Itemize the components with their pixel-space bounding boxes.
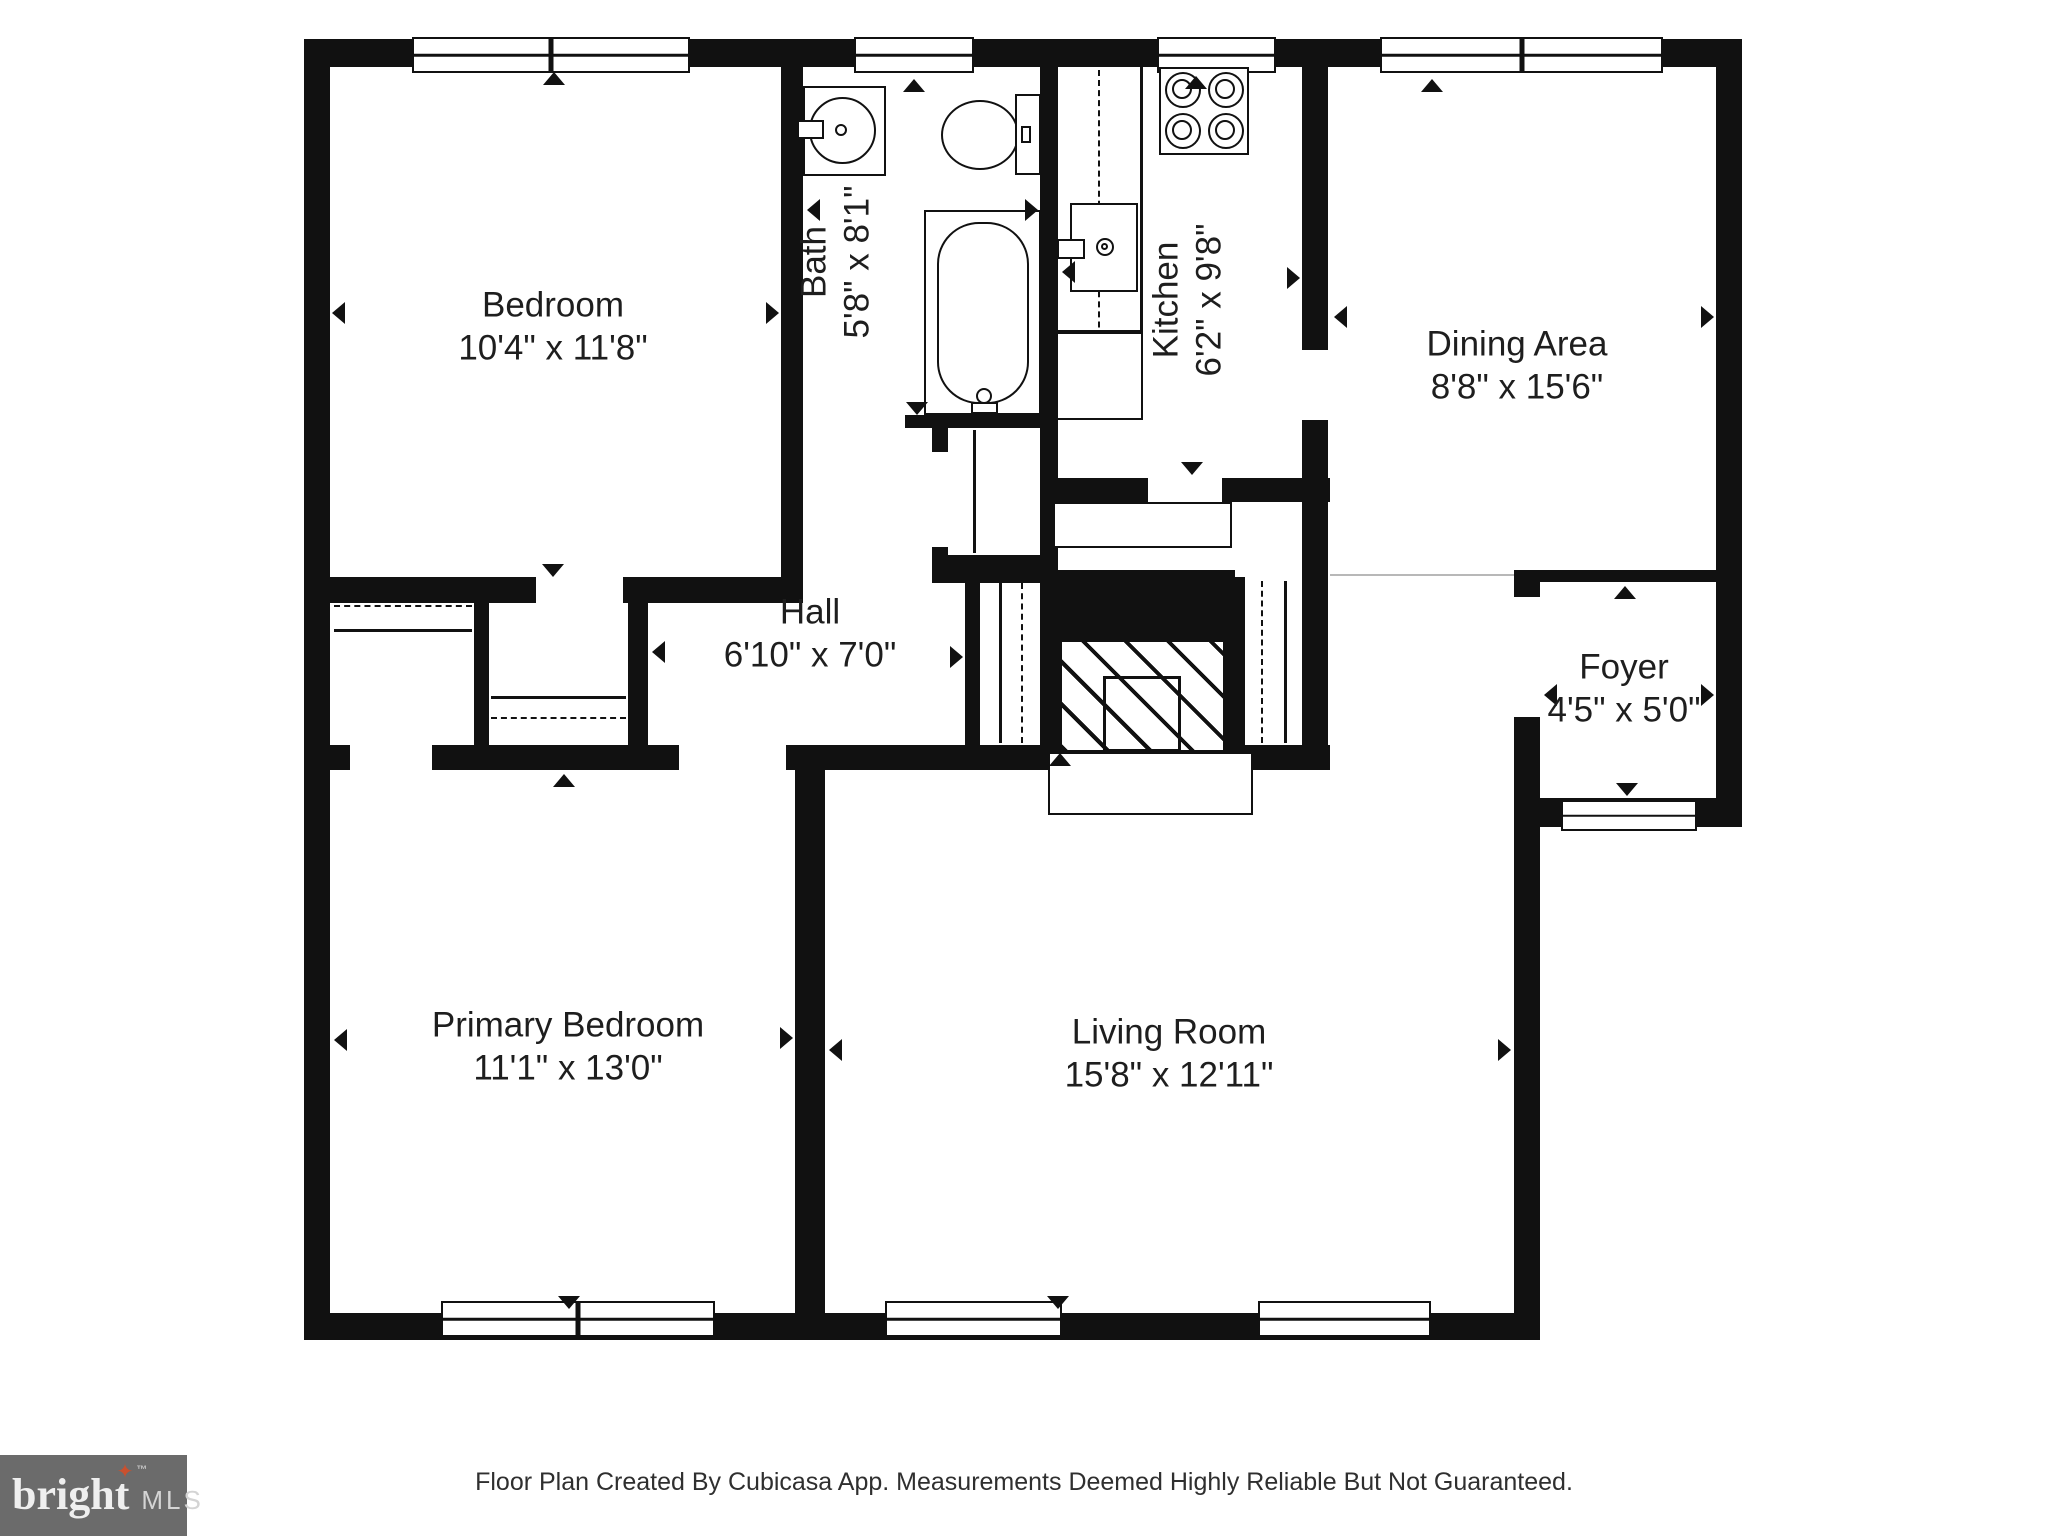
window-glass-line [1158, 54, 1275, 57]
wall [786, 745, 965, 770]
window-mullion [1519, 38, 1524, 72]
wall [474, 603, 489, 745]
room-label-kitchen: Kitchen 6'2" x 9'8" [1145, 223, 1232, 376]
wall [1040, 640, 1060, 755]
stove-burner-icon [1165, 113, 1201, 149]
dimension-arrow-icon [1049, 753, 1071, 766]
dimension-arrow-icon [829, 1039, 842, 1061]
closet-shelf-line [973, 430, 976, 553]
bathtub-faucet-base-icon [971, 402, 998, 414]
floor-plan: Bedroom 10'4" x 11'8" Bath 5'8" x 8'1" K… [0, 0, 2048, 1536]
closet-shelf-line [334, 629, 472, 632]
window-glass-line [855, 54, 973, 57]
room-dims: 10'4" x 11'8" [458, 327, 647, 370]
window-glass-line [1562, 814, 1696, 817]
dimension-arrow-icon [1181, 462, 1203, 475]
logo-star-icon: ✦ [117, 1461, 134, 1481]
dimension-arrow-icon [543, 72, 565, 85]
room-label-primary-bedroom: Primary Bedroom 11'1" x 13'0" [432, 1004, 704, 1091]
wall [795, 770, 825, 1313]
closet-shelf-line [1140, 67, 1143, 332]
bright-mls-logo: bright✦™ MLS [0, 1455, 187, 1536]
room-label-bedroom: Bedroom 10'4" x 11'8" [458, 284, 647, 371]
wall [932, 555, 1053, 583]
window-glass-line [1259, 1318, 1430, 1321]
room-dims: 6'2" x 9'8" [1188, 223, 1231, 376]
closet-rod-dashed-line [491, 717, 626, 719]
wall [628, 603, 648, 745]
fireplace-firebox-icon [1103, 676, 1181, 752]
room-name: Foyer [1547, 646, 1700, 689]
logo-suffix-text: MLS [141, 1485, 203, 1516]
dimension-arrow-icon [780, 1027, 793, 1049]
dimension-arrow-icon [1421, 79, 1443, 92]
closet-shelf-line [1284, 581, 1287, 743]
bath-sink-drain-icon [835, 124, 847, 136]
bath-sink-faucet-icon [797, 120, 824, 139]
wall [1222, 478, 1330, 502]
dimension-arrow-icon [553, 774, 575, 787]
wall [1302, 67, 1328, 350]
room-name: Dining Area [1427, 323, 1608, 366]
floor-transition-line [1330, 574, 1514, 576]
closet-shelf-line [999, 583, 1002, 743]
kitchen-sink-drain-icon [1096, 238, 1114, 256]
wall [1302, 570, 1328, 770]
wall [1528, 570, 1716, 582]
room-dims: 8'8" x 15'6" [1427, 366, 1608, 409]
kitchen-peninsula-counter [1053, 502, 1232, 548]
dimension-arrow-icon [1701, 306, 1714, 328]
stove-burner-icon [1208, 72, 1244, 108]
counter-dashed-line [1021, 583, 1023, 743]
dimension-arrow-icon [1498, 1039, 1511, 1061]
bathtub-basin-icon [937, 222, 1029, 404]
window [1561, 800, 1697, 831]
disclaimer-text: Floor Plan Created By Cubicasa App. Meas… [0, 1468, 2048, 1497]
fireplace-hearth [1048, 752, 1253, 815]
dimension-arrow-icon [1047, 1296, 1069, 1309]
room-name: Primary Bedroom [432, 1004, 704, 1047]
wall [965, 577, 980, 770]
trademark-symbol: ™ [136, 1465, 147, 1476]
room-dims: 5'8" x 8'1" [836, 185, 879, 338]
dimension-arrow-icon [906, 402, 928, 415]
wall [1235, 577, 1245, 745]
wall [330, 577, 536, 603]
stove-burner-icon [1208, 113, 1244, 149]
closet-rod-dashed-line [334, 605, 472, 607]
room-label-bath: Bath 5'8" x 8'1" [793, 185, 880, 338]
wall [932, 428, 948, 452]
window [885, 1301, 1062, 1337]
dimension-arrow-icon [334, 1029, 347, 1051]
wall [432, 745, 679, 770]
dimension-arrow-icon [1025, 199, 1038, 221]
room-name: Hall [724, 591, 897, 634]
dimension-arrow-icon [652, 641, 665, 663]
room-name: Kitchen [1145, 223, 1188, 376]
dimension-arrow-icon [332, 302, 345, 324]
dimension-arrow-icon [542, 564, 564, 577]
closet-shelf-line [491, 696, 626, 699]
kitchen-cabinet [1056, 332, 1143, 420]
window [1380, 37, 1663, 73]
room-dims: 11'1" x 13'0" [432, 1047, 704, 1090]
room-label-hall: Hall 6'10" x 7'0" [724, 591, 897, 678]
room-label-living-room: Living Room 15'8" x 12'11" [1065, 1011, 1274, 1098]
room-label-foyer: Foyer 4'5" x 5'0" [1547, 646, 1700, 733]
dimension-arrow-icon [1185, 76, 1207, 89]
kitchen-sink-faucet-icon [1057, 239, 1085, 259]
wall [1514, 812, 1540, 1313]
dimension-arrow-icon [558, 1296, 580, 1309]
window-glass-line [886, 1318, 1061, 1321]
dimension-arrow-icon [1334, 306, 1347, 328]
wall [1040, 570, 1235, 640]
wall [1040, 478, 1148, 502]
room-name: Bath [793, 185, 836, 338]
room-dims: 15'8" x 12'11" [1065, 1054, 1274, 1097]
window [854, 37, 974, 73]
room-dims: 4'5" x 5'0" [1547, 689, 1700, 732]
dimension-arrow-icon [1616, 783, 1638, 796]
room-name: Living Room [1065, 1011, 1274, 1054]
logo-brand-text: bright✦™ [12, 1473, 129, 1517]
room-label-dining-area: Dining Area 8'8" x 15'6" [1427, 323, 1608, 410]
wall [330, 745, 350, 770]
window-mullion [549, 38, 554, 72]
toilet-flush-icon [1021, 126, 1031, 143]
dimension-arrow-icon [1287, 267, 1300, 289]
toilet-bowl-icon [941, 100, 1019, 170]
dimension-arrow-icon [766, 302, 779, 324]
wall [304, 39, 330, 1340]
window [1258, 1301, 1431, 1337]
wall [1716, 39, 1742, 827]
wall [905, 415, 1058, 428]
counter-dashed-line [1261, 581, 1263, 743]
room-name: Bedroom [458, 284, 647, 327]
dimension-arrow-icon [903, 79, 925, 92]
dimension-arrow-icon [1701, 684, 1714, 706]
room-dims: 6'10" x 7'0" [724, 634, 897, 677]
dimension-arrow-icon [1614, 586, 1636, 599]
window [412, 37, 690, 73]
dimension-arrow-icon [950, 646, 963, 668]
dimension-arrow-icon [1062, 261, 1075, 283]
